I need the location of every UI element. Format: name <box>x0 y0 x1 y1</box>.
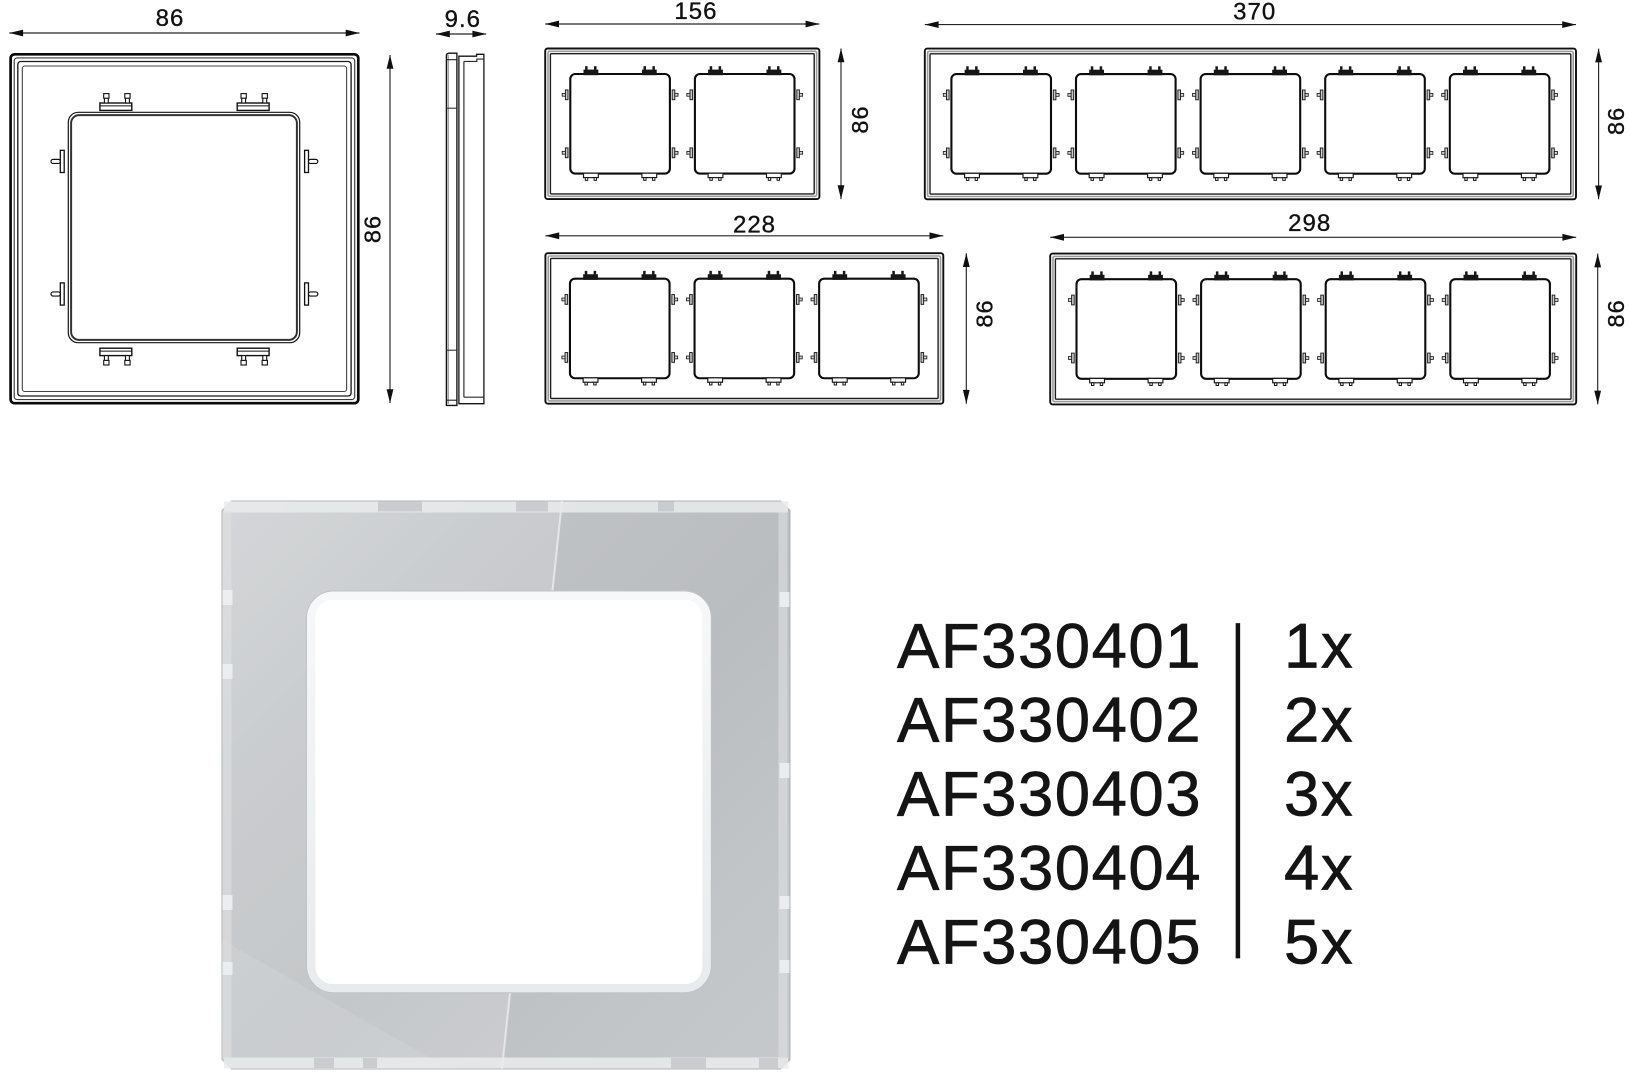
svg-text:5x: 5x <box>1284 908 1354 978</box>
svg-text:298: 298 <box>1288 210 1331 237</box>
svg-text:3x: 3x <box>1284 760 1354 830</box>
svg-text:156: 156 <box>674 0 717 25</box>
svg-text:86: 86 <box>1603 299 1629 327</box>
svg-text:86: 86 <box>156 5 185 32</box>
svg-text:2x: 2x <box>1284 686 1354 756</box>
svg-text:370: 370 <box>1233 0 1276 25</box>
svg-text:1x: 1x <box>1284 612 1354 682</box>
svg-text:86: 86 <box>360 215 386 243</box>
svg-text:4x: 4x <box>1284 834 1354 904</box>
svg-text:AF330403: AF330403 <box>897 760 1202 830</box>
svg-text:86: 86 <box>972 299 998 327</box>
svg-text:AF330404: AF330404 <box>897 834 1202 904</box>
svg-text:AF330401: AF330401 <box>897 612 1202 682</box>
svg-text:86: 86 <box>1603 107 1629 135</box>
svg-text:9.6: 9.6 <box>445 6 481 33</box>
svg-text:AF330402: AF330402 <box>897 686 1202 756</box>
svg-text:AF330405: AF330405 <box>897 908 1202 978</box>
svg-text:86: 86 <box>847 105 873 133</box>
svg-text:228: 228 <box>733 212 776 239</box>
